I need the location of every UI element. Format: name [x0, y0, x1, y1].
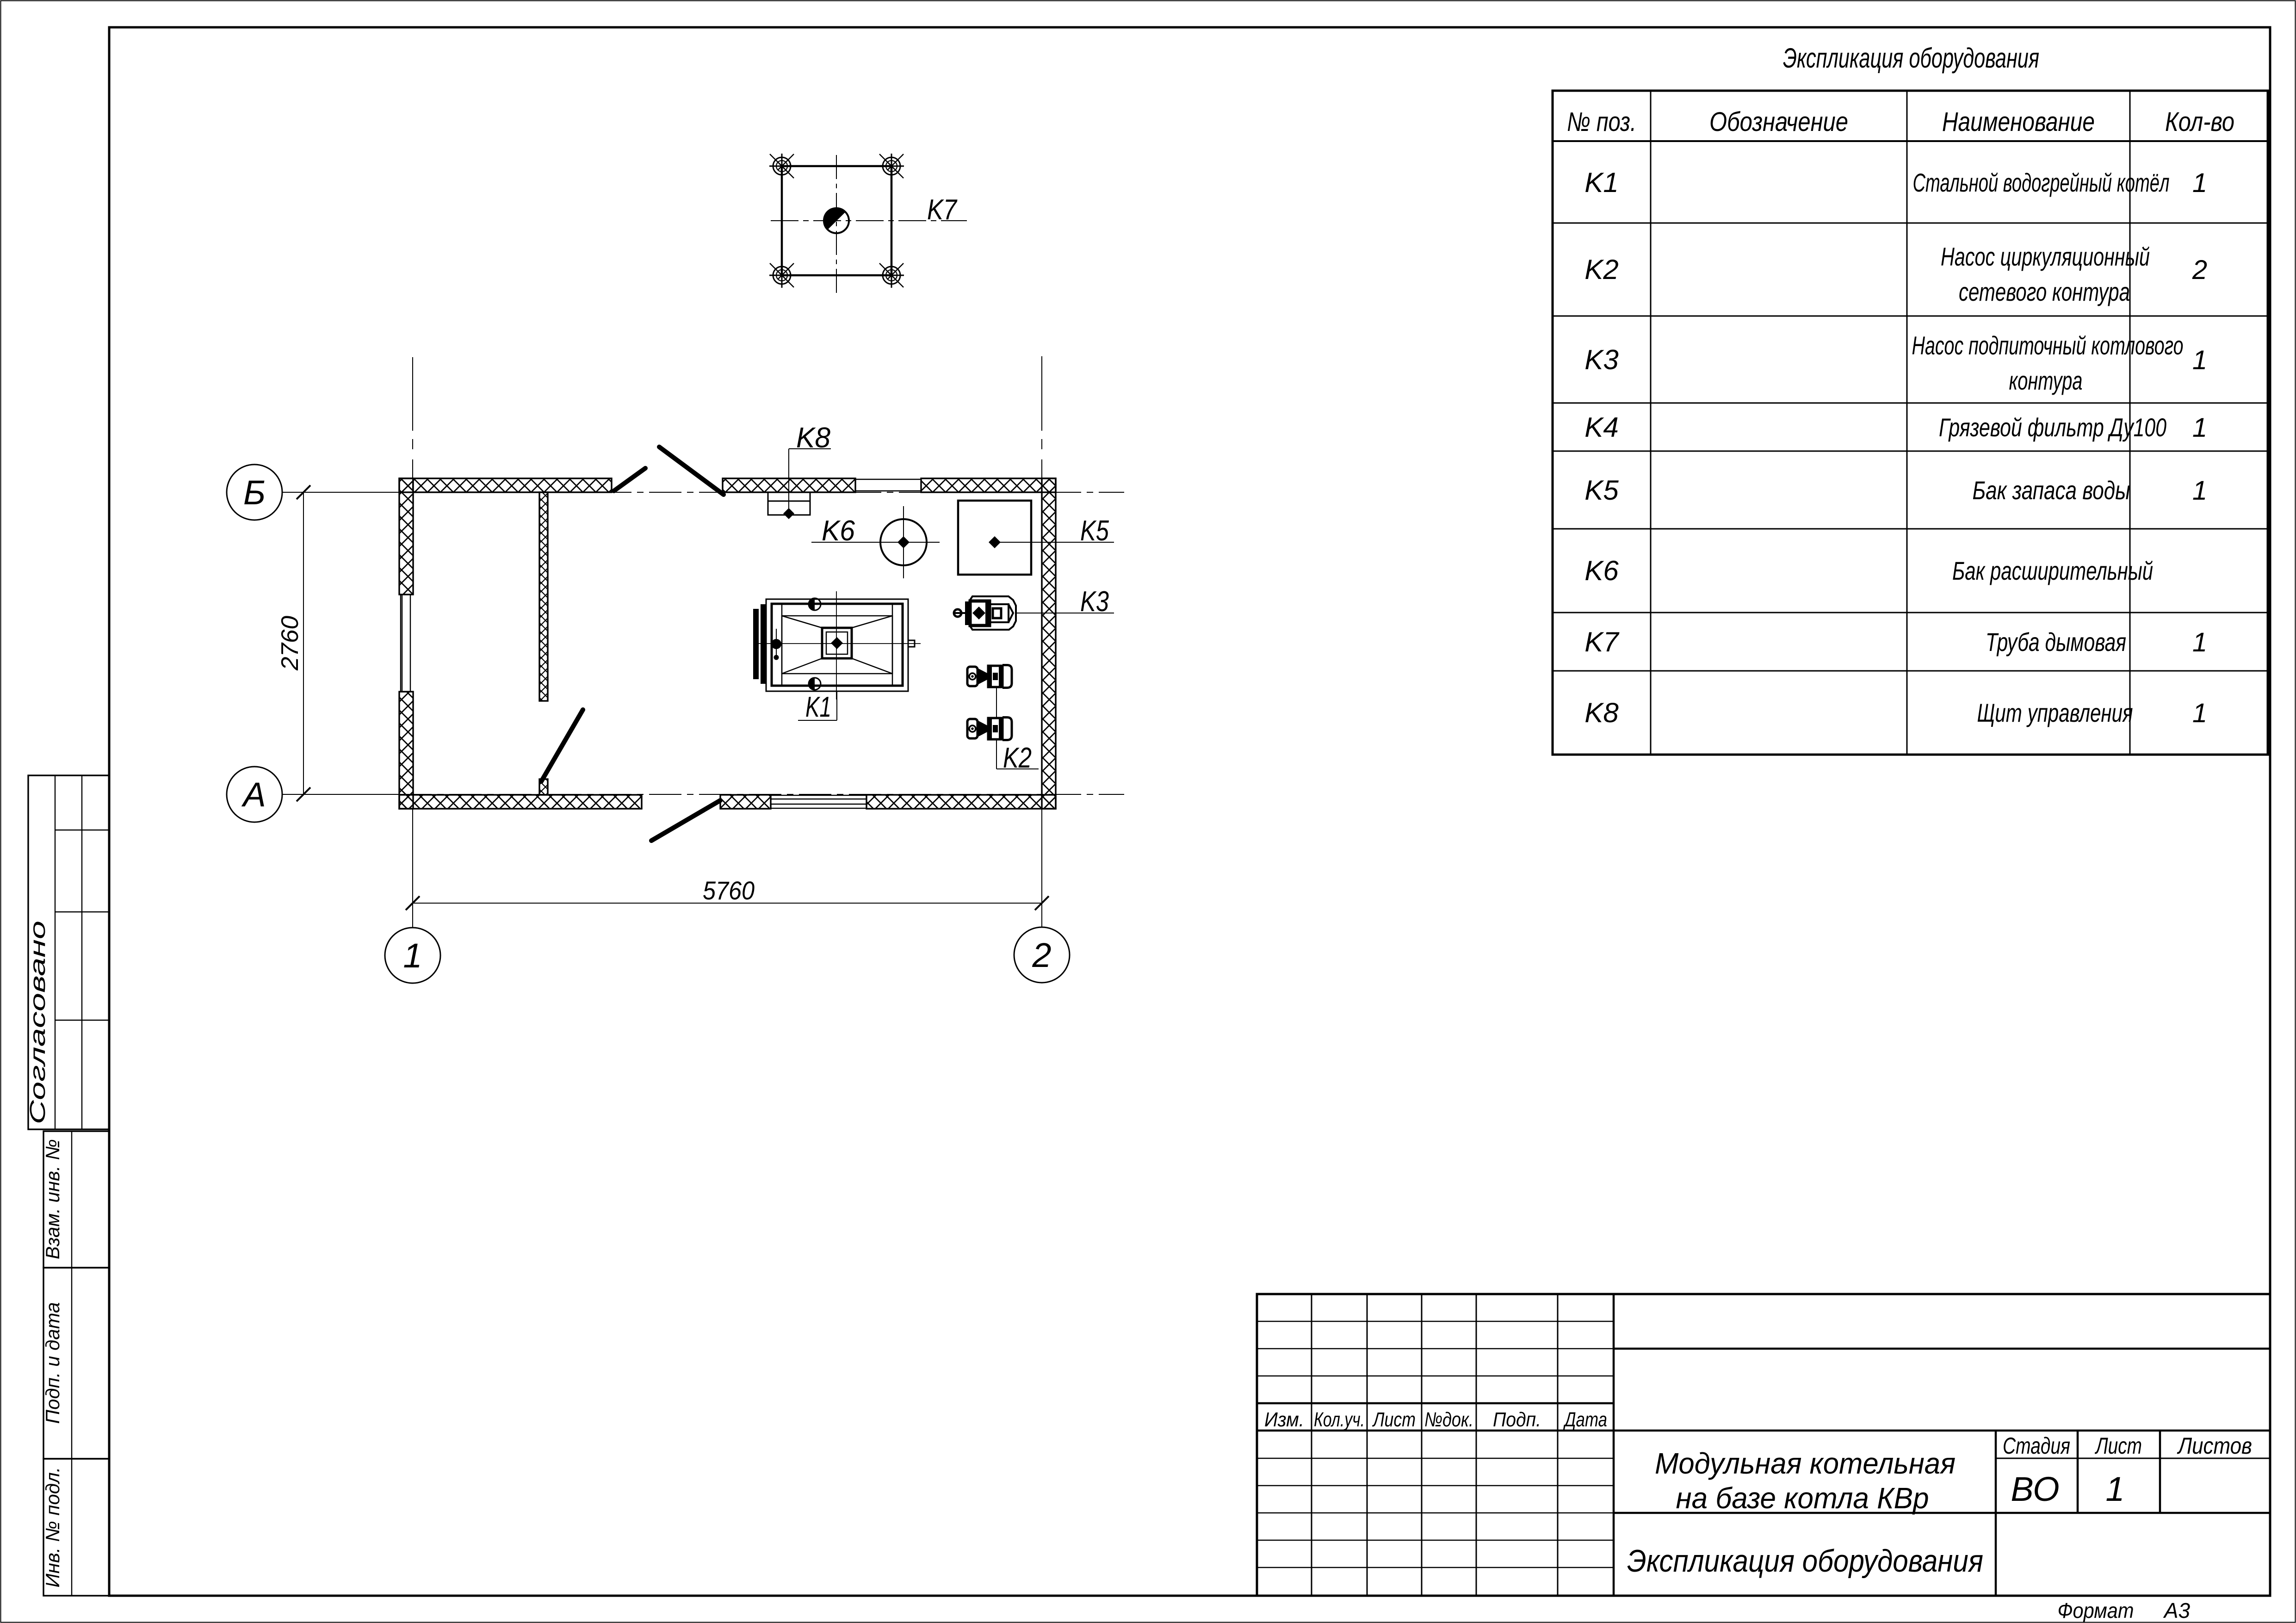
svg-text:Модульная котельная: Модульная котельная	[1655, 1447, 1956, 1480]
svg-text:2760: 2760	[277, 616, 303, 671]
svg-text:№ поз.: № поз.	[1567, 107, 1636, 137]
svg-text:1: 1	[403, 936, 422, 975]
svg-text:Инв. № подл.: Инв. № подл.	[42, 1467, 63, 1588]
svg-text:Дата: Дата	[1563, 1408, 1607, 1431]
svg-text:K6: K6	[822, 515, 855, 547]
svg-text:Бак запаса воды: Бак запаса воды	[1973, 476, 2130, 505]
svg-text:А3: А3	[2163, 1598, 2191, 1623]
svg-text:Экспликация оборудования: Экспликация оборудования	[1783, 43, 2039, 74]
svg-text:Б: Б	[243, 473, 266, 512]
svg-text:K7: K7	[927, 194, 958, 226]
svg-text:Насос циркуляционный: Насос циркуляционный	[1941, 242, 2150, 271]
svg-text:Обозначение: Обозначение	[1709, 107, 1848, 137]
svg-text:Листов: Листов	[2177, 1433, 2252, 1459]
svg-text:K2: K2	[1003, 742, 1032, 774]
svg-text:K6: K6	[1584, 555, 1619, 586]
svg-text:Кол-во: Кол-во	[2165, 107, 2234, 137]
svg-text:K8: K8	[1584, 697, 1619, 728]
svg-text:2: 2	[2192, 255, 2207, 285]
svg-text:K8: K8	[796, 422, 830, 454]
svg-text:1: 1	[2192, 168, 2207, 198]
svg-text:Взам. инв. №: Взам. инв. №	[42, 1139, 63, 1259]
svg-text:Труба дымовая: Труба дымовая	[1986, 627, 2126, 657]
svg-text:K7: K7	[1584, 626, 1620, 657]
svg-text:Лист: Лист	[2095, 1433, 2142, 1459]
svg-text:K1: K1	[1584, 167, 1618, 198]
svg-text:K3: K3	[1584, 344, 1618, 375]
svg-text:1: 1	[2105, 1470, 2124, 1508]
svg-text:1: 1	[2192, 413, 2207, 443]
svg-text:1: 1	[2192, 627, 2207, 657]
svg-text:K4: K4	[1584, 412, 1618, 443]
svg-text:5760: 5760	[703, 876, 755, 905]
svg-text:Наименование: Наименование	[1942, 107, 2095, 137]
svg-text:на базе котла КВр: на базе котла КВр	[1676, 1481, 1929, 1515]
svg-text:Кол.уч.: Кол.уч.	[1314, 1408, 1365, 1431]
svg-text:Формат: Формат	[2058, 1598, 2134, 1623]
svg-text:K5: K5	[1584, 475, 1619, 506]
svg-text:Согласовано: Согласовано	[25, 921, 50, 1124]
svg-text:2: 2	[1032, 936, 1051, 974]
svg-text:сетевого контура: сетевого контура	[1959, 277, 2130, 306]
svg-text:Стадия: Стадия	[2003, 1433, 2070, 1459]
svg-text:K2: K2	[1584, 254, 1618, 285]
svg-text:Подп.: Подп.	[1493, 1408, 1541, 1431]
svg-text:Изм.: Изм.	[1264, 1408, 1304, 1431]
svg-text:Грязевой фильтр Ду100: Грязевой фильтр Ду100	[1939, 413, 2166, 442]
svg-text:ВО: ВО	[2011, 1470, 2059, 1508]
svg-text:1: 1	[2192, 476, 2207, 506]
svg-text:K1: K1	[805, 691, 831, 723]
svg-text:контура: контура	[2009, 366, 2083, 395]
svg-text:K3: K3	[1080, 586, 1109, 618]
svg-text:Стальной водогрейный котёл: Стальной водогрейный котёл	[1913, 168, 2170, 197]
svg-text:Экспликация оборудования: Экспликация оборудования	[1627, 1543, 1983, 1579]
svg-text:1: 1	[2192, 345, 2207, 375]
svg-text:Бак расширительный: Бак расширительный	[1952, 556, 2153, 585]
svg-text:Щит управления: Щит управления	[1977, 698, 2133, 727]
svg-text:Насос подпиточный котлового: Насос подпиточный котлового	[1912, 331, 2184, 360]
svg-text:K5: K5	[1080, 515, 1109, 547]
svg-text:Подп. и дата: Подп. и дата	[42, 1302, 63, 1424]
svg-text:А: А	[241, 775, 266, 814]
svg-text:1: 1	[2192, 698, 2207, 728]
svg-text:№док.: №док.	[1424, 1408, 1473, 1431]
svg-text:Лист: Лист	[1372, 1408, 1416, 1431]
